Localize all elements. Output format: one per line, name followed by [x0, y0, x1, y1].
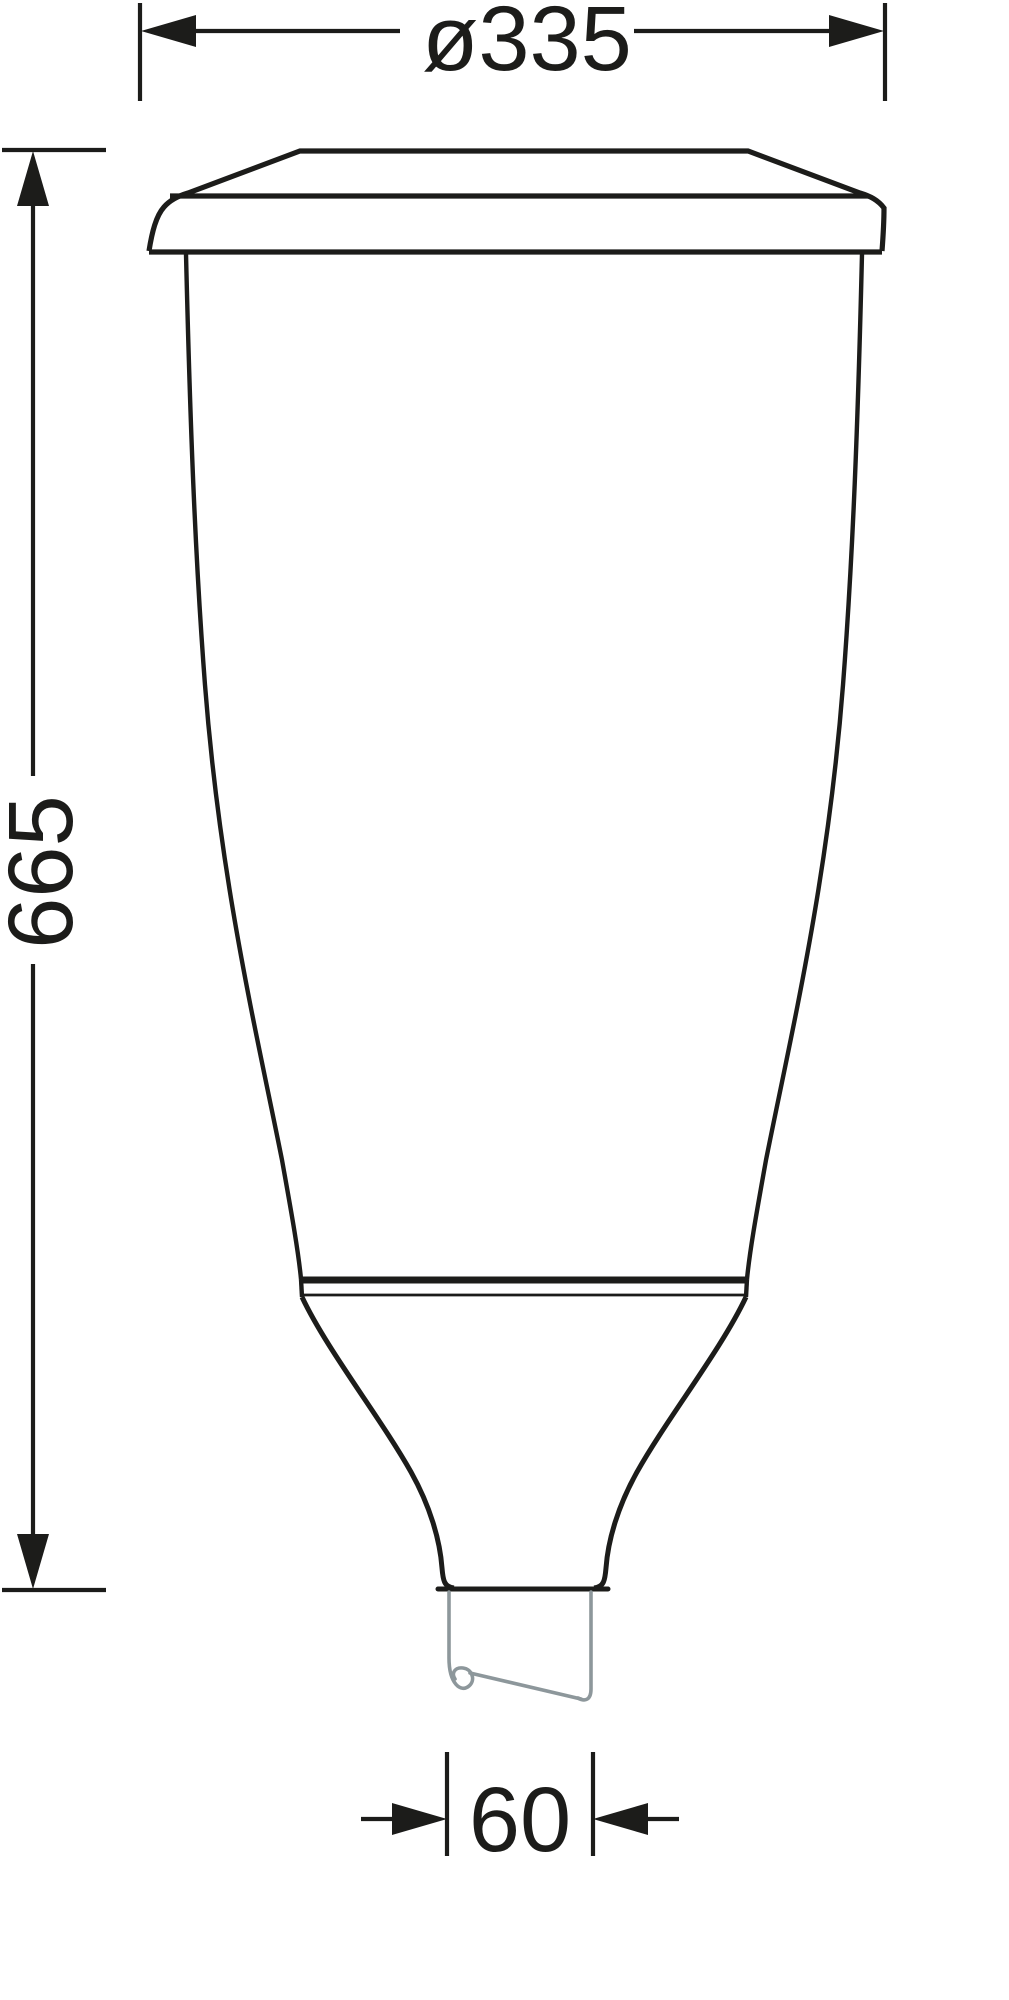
- body-edge-left: [186, 254, 301, 1279]
- luminaire-neck: [302, 1297, 746, 1589]
- funnel-edge-right: [594, 1297, 746, 1588]
- luminaire-body: [186, 254, 862, 1297]
- cap-outline: [149, 151, 884, 251]
- dimension-drawing-canvas: ø335 665 60: [0, 0, 1009, 2000]
- ink-strokes: [2, 3, 885, 1856]
- technical-drawing: ø335 665 60: [0, 0, 1009, 2000]
- label-spigot-width: 60: [469, 1769, 571, 1871]
- seam-edge-left: [301, 1279, 302, 1297]
- arrowhead-inward-right-icon: [593, 1803, 648, 1835]
- arrowhead-left-icon: [141, 15, 196, 47]
- spigot-edge-right: [578, 1592, 591, 1700]
- spigot-break-line: [470, 1673, 581, 1699]
- arrowhead-inward-left-icon: [392, 1803, 447, 1835]
- arrowhead-right-icon: [829, 15, 884, 47]
- body-edge-right: [747, 254, 862, 1279]
- spigot: [449, 1592, 591, 1700]
- arrowheads: [17, 15, 884, 1835]
- seam-edge-right: [746, 1279, 747, 1297]
- arrowhead-down-icon: [17, 1534, 49, 1589]
- luminaire-cap: [149, 151, 884, 252]
- arrowhead-up-icon: [17, 151, 49, 206]
- funnel-edge-left: [302, 1297, 454, 1588]
- label-top-diameter: ø335: [422, 0, 632, 90]
- label-overall-height: 665: [0, 795, 92, 949]
